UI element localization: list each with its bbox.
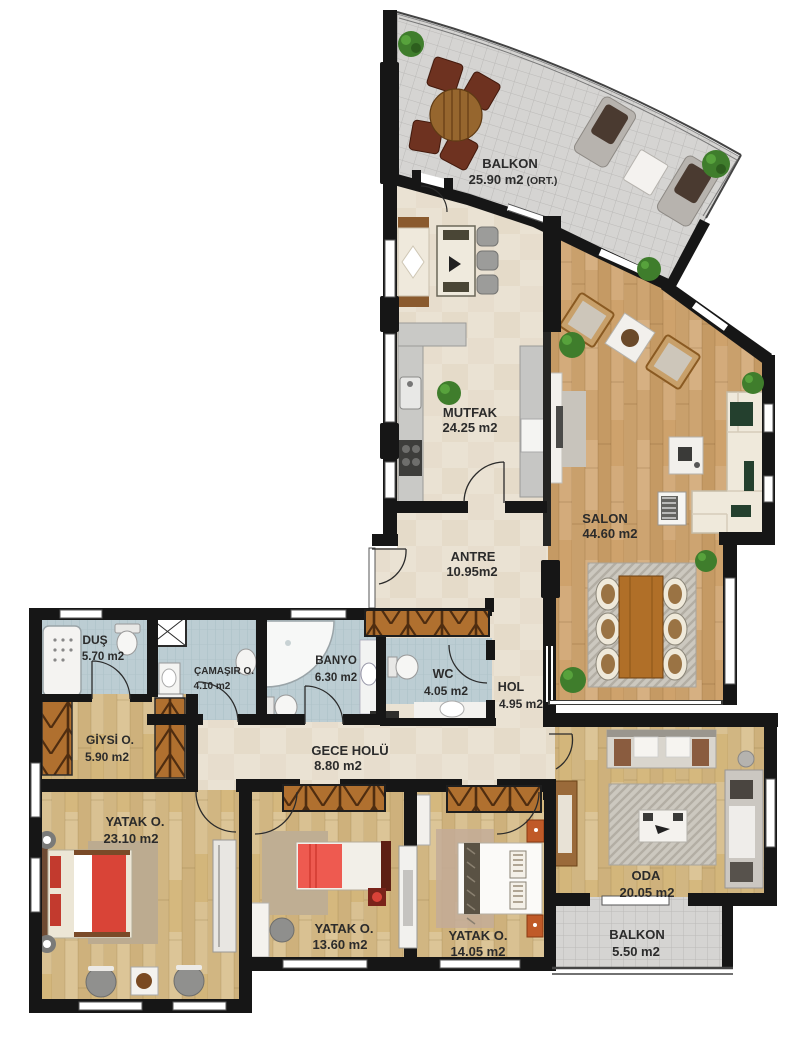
svg-text:5.50 m2: 5.50 m2: [612, 944, 660, 959]
svg-text:24.25 m2: 24.25 m2: [443, 420, 498, 435]
svg-text:44.60 m2: 44.60 m2: [583, 526, 638, 541]
svg-text:SALON: SALON: [582, 511, 628, 526]
svg-text:23.10 m2: 23.10 m2: [104, 831, 159, 846]
svg-text:MUTFAK: MUTFAK: [443, 405, 498, 420]
svg-text:YATAK O.: YATAK O.: [449, 928, 508, 943]
svg-text:4.95 m2: 4.95 m2: [499, 697, 543, 711]
svg-text:DUŞ: DUŞ: [82, 633, 107, 647]
svg-text:WC: WC: [433, 667, 454, 681]
svg-text:13.60 m2: 13.60 m2: [313, 937, 368, 952]
svg-text:GİYSİ O.: GİYSİ O.: [86, 732, 134, 747]
svg-text:10.95m2: 10.95m2: [446, 564, 497, 579]
svg-text:BANYO: BANYO: [315, 655, 357, 667]
svg-text:BALKON: BALKON: [609, 927, 665, 942]
svg-text:4.10 m2: 4.10 m2: [194, 681, 231, 692]
svg-text:14.05 m2: 14.05 m2: [451, 944, 506, 959]
svg-text:ANTRE: ANTRE: [451, 549, 496, 564]
svg-text:5.70 m2: 5.70 m2: [82, 651, 124, 663]
svg-text:4.05 m2: 4.05 m2: [424, 684, 468, 698]
svg-text:25.90 m2 (ORT.): 25.90 m2 (ORT.): [469, 172, 558, 187]
svg-text:6.30 m2: 6.30 m2: [315, 672, 357, 684]
svg-text:5.90 m2: 5.90 m2: [85, 750, 129, 764]
svg-text:GECE HOLÜ: GECE HOLÜ: [311, 743, 388, 758]
svg-text:20.05 m2: 20.05 m2: [620, 885, 675, 900]
svg-text:YATAK O.: YATAK O.: [106, 814, 165, 829]
svg-text:ÇAMAŞIR O.: ÇAMAŞIR O.: [194, 666, 254, 677]
svg-text:YATAK O.: YATAK O.: [315, 921, 374, 936]
svg-text:HOL: HOL: [498, 680, 525, 694]
svg-text:ODA: ODA: [632, 868, 662, 883]
svg-text:8.80 m2: 8.80 m2: [314, 758, 362, 773]
svg-text:BALKON: BALKON: [482, 156, 538, 171]
